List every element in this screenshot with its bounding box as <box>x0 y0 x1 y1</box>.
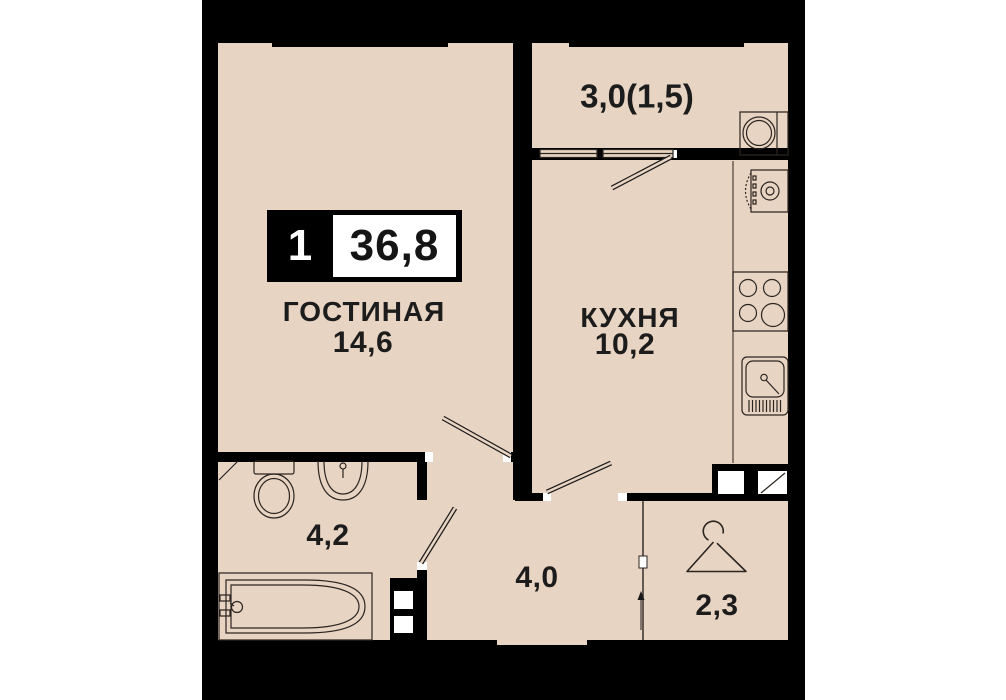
vent-flue-mark <box>761 473 785 493</box>
bathroom-area: 4,2 <box>306 521 349 551</box>
door-leaf-bathroom <box>421 508 455 563</box>
washing-machine-icon <box>740 112 788 155</box>
kitchen-area: 10,2 <box>595 330 655 360</box>
oven-icon <box>746 170 789 212</box>
stove-icon <box>733 272 788 331</box>
total-area-box: 36,8 <box>333 215 456 277</box>
floor-plan: 1 36,8 ГОСТИНАЯ 14,6 КУХНЯ 10,2 3,0(1,5)… <box>0 0 1006 700</box>
corner-shelf <box>219 461 238 480</box>
plan-detail-layer <box>0 0 1006 700</box>
balcony-window <box>540 150 673 158</box>
total-area: 36,8 <box>333 215 456 277</box>
hallway-area: 4,0 <box>515 563 558 593</box>
kitchen-sink-icon <box>742 357 788 415</box>
door-wardrobe <box>638 501 648 640</box>
bath-sink-icon <box>318 461 368 500</box>
door-leaf-balcony <box>612 157 671 188</box>
wardrobe-area: 2,3 <box>695 591 738 621</box>
summary-badge: 1 36,8 <box>267 210 462 282</box>
living-room-label: ГОСТИНАЯ <box>283 298 446 326</box>
room-count: 1 <box>267 210 333 282</box>
toilet-icon <box>254 461 294 518</box>
sink-drainboard <box>749 400 781 412</box>
hanger-icon <box>687 521 746 571</box>
door-leaf-living <box>443 418 511 456</box>
bathtub-icon <box>219 573 372 640</box>
door-leaf-kitchen <box>547 463 611 492</box>
living-room-area: 14,6 <box>333 328 393 358</box>
balcony-area: 3,0(1,5) <box>580 80 694 113</box>
